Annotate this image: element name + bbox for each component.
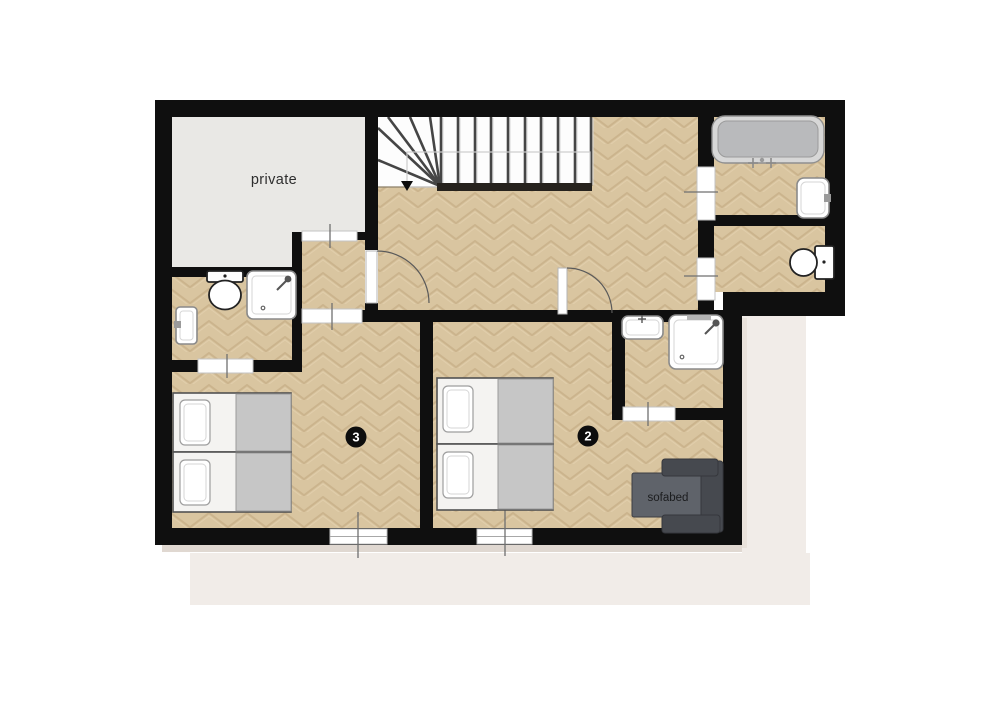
ensuite-door-opening (198, 359, 253, 373)
bathtub (712, 116, 824, 168)
bathroom-sink (797, 178, 831, 218)
bedroom2-beds (437, 378, 553, 510)
showerroom-door-opening (623, 407, 675, 421)
bedroom-2-badge: 2 (578, 426, 599, 447)
sofabed-label: sofabed (648, 492, 689, 504)
wall-outer-left (155, 100, 172, 545)
backdrop-bottom-band (190, 553, 810, 605)
blanket (236, 394, 291, 451)
wc-toilet (790, 246, 834, 279)
stair-bottom-step-edge (437, 183, 592, 191)
building-shadow-bottom (162, 545, 742, 552)
backdrop-right-strip (742, 316, 806, 557)
wall-stairwell-left (365, 117, 378, 250)
blanket (498, 445, 553, 509)
wall-outer-top (155, 100, 845, 117)
showerroom-shower (669, 315, 723, 369)
ensuite-sink (174, 307, 197, 344)
floorplan-image: sofabed private 3 2 (0, 0, 1000, 707)
wall-outer-bottom (155, 528, 742, 545)
bathroom-door-opening (697, 167, 715, 220)
bedroom3-beds (173, 393, 291, 512)
bedroom-3-badge-number: 3 (352, 430, 359, 445)
bedroom-2-badge-number: 2 (584, 429, 591, 444)
corridor-floor (302, 240, 365, 310)
bathroom-sink-faucet-icon (824, 194, 831, 202)
blanket (498, 379, 553, 443)
wc-door-opening (697, 258, 715, 300)
showerroom-shower-door-icon (687, 315, 711, 320)
ensuite-shower (247, 271, 296, 319)
ensuite-sink-faucet-icon (174, 321, 181, 328)
wall-bedroom-divider (420, 310, 433, 528)
blanket (236, 453, 291, 511)
bedroom-3-badge: 3 (346, 427, 367, 448)
showerroom-sink (622, 315, 663, 339)
ensuite-toilet (207, 271, 243, 310)
wall-outer-right-lower (723, 292, 742, 545)
room-label-private: private (251, 172, 297, 188)
staircase (378, 117, 593, 191)
floorplan-canvas: sofabed private 3 2 (0, 0, 1000, 707)
building-shadow-right (742, 318, 747, 548)
